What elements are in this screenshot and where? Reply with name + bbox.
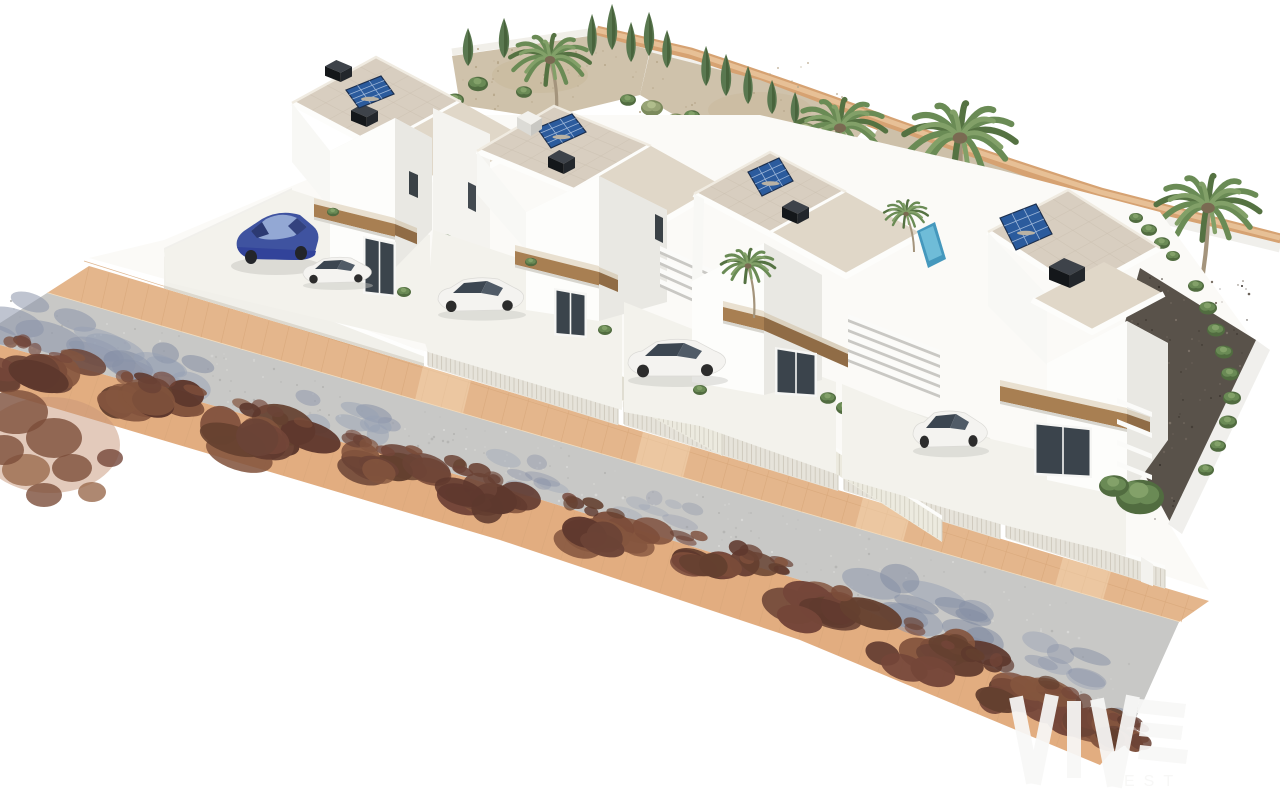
svg-text:EST: EST: [1124, 773, 1182, 790]
